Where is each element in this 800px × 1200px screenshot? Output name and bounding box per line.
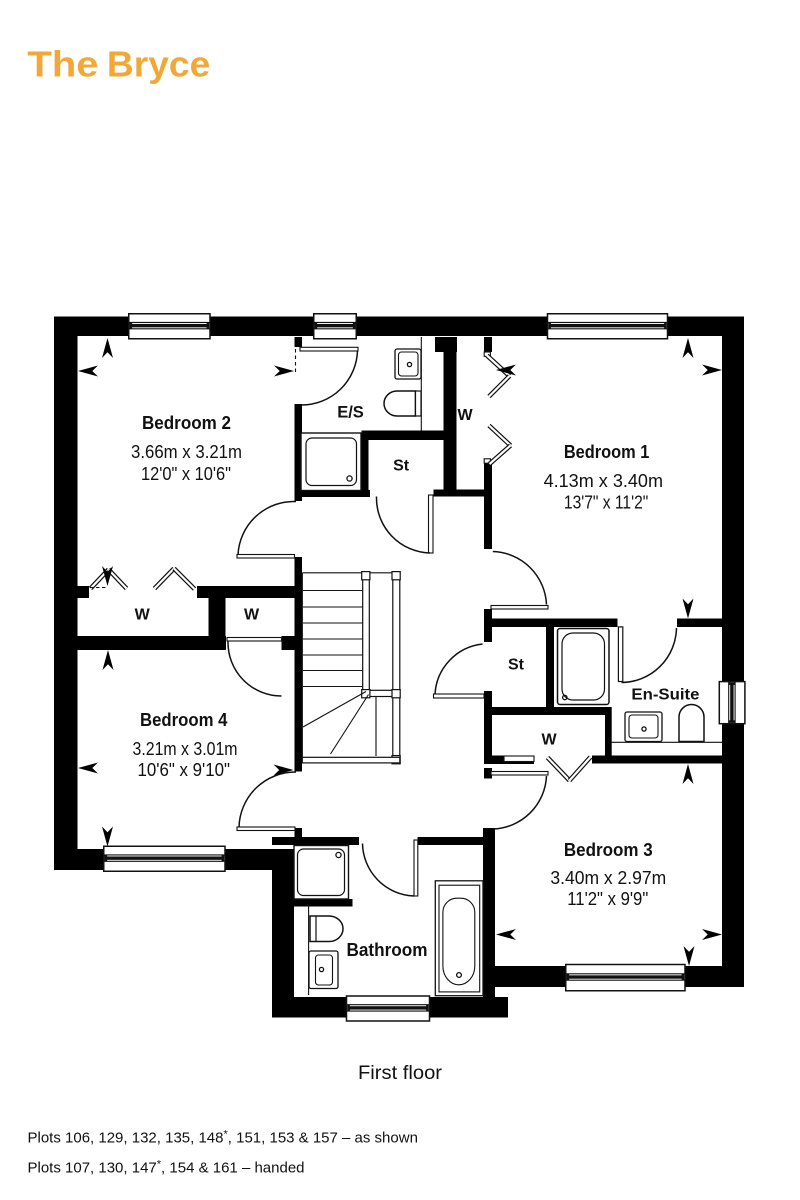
svg-text:Plots 106, 129, 132, 135, 148*: Plots 106, 129, 132, 135, 148*, 151, 153… [28,1129,418,1147]
svg-text:En-Suite: En-Suite [631,687,699,704]
svg-text:Plots 107, 130, 147*, 154 & 16: Plots 107, 130, 147*, 154 & 161 – handed [28,1159,305,1177]
svg-text:3.66m x 3.21m: 3.66m x 3.21m [131,442,242,462]
svg-text:St: St [508,657,525,674]
svg-text:10'6" x 9'10": 10'6" x 9'10" [138,760,231,780]
svg-text:E/S: E/S [337,404,364,422]
svg-text:Bedroom 3: Bedroom 3 [564,840,653,860]
svg-text:11'2" x 9'9": 11'2" x 9'9" [567,889,648,909]
svg-text:W: W [457,407,473,424]
svg-text:Bedroom 1: Bedroom 1 [564,442,650,462]
svg-text:4.13m x 3.40m: 4.13m x 3.40m [544,471,663,491]
svg-text:St: St [393,457,410,474]
svg-text:12'0" x 10'6": 12'0" x 10'6" [141,464,231,484]
svg-text:Bathroom: Bathroom [347,940,428,960]
svg-text:3.40m x 2.97m: 3.40m x 2.97m [550,868,666,888]
svg-text:First floor: First floor [358,1063,443,1084]
svg-text:W: W [244,607,260,624]
svg-text:TheBryce: TheBryce [27,43,210,84]
svg-text:3.21m x 3.01m: 3.21m x 3.01m [133,739,238,759]
svg-text:Bedroom 2: Bedroom 2 [142,413,231,433]
svg-text:Bedroom 4: Bedroom 4 [140,710,228,730]
svg-text:13'7" x 11'2": 13'7" x 11'2" [564,493,648,513]
svg-text:W: W [541,732,557,749]
svg-text:W: W [135,607,151,624]
